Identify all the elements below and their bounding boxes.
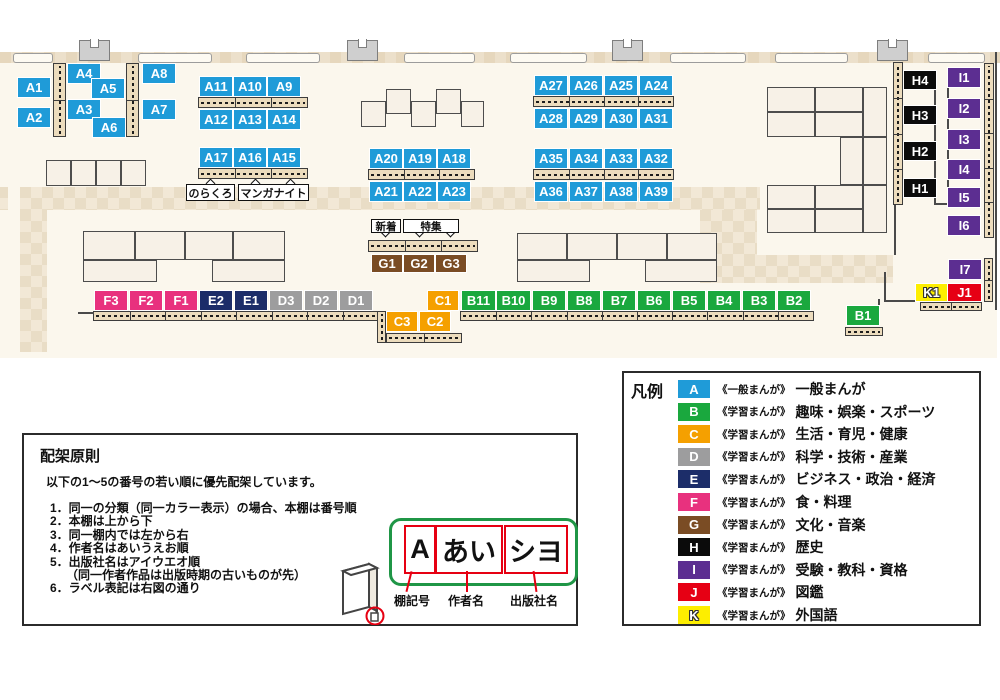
- table: [83, 260, 157, 282]
- shelf-label-J1: J1: [948, 284, 981, 301]
- legend-swatch-J: J: [678, 583, 710, 601]
- pillar-notch: [623, 39, 632, 48]
- window: [404, 53, 475, 63]
- bookshelf: [93, 311, 379, 321]
- legend-category: 一般まんが: [796, 379, 866, 399]
- wall-line: [894, 205, 896, 255]
- table: [767, 87, 815, 112]
- shelf-label-A33: A33: [605, 149, 637, 168]
- legend-row-B: B《学習まんが》趣味・娯楽・スポーツ: [678, 401, 935, 423]
- legend-category: 外国語: [796, 605, 838, 625]
- shelf-label-C1: C1: [428, 291, 458, 310]
- table: [767, 209, 815, 233]
- shelf-label-B8: B8: [568, 291, 600, 310]
- shelf-label-A10: A10: [234, 77, 266, 96]
- shelf-label-A25: A25: [605, 76, 637, 95]
- bookshelf: [460, 311, 814, 321]
- bookshelf: [893, 62, 903, 205]
- shelf-label-A12: A12: [200, 110, 232, 129]
- bookshelf-divider: [567, 312, 568, 320]
- wall-line: [78, 312, 94, 314]
- shelf-label-B7: B7: [603, 291, 635, 310]
- table: [815, 87, 863, 112]
- book-illustration: [329, 553, 404, 625]
- legend-category: 歴史: [796, 537, 824, 557]
- table: [121, 160, 146, 186]
- legend-type: 《学習まんが》: [717, 472, 791, 487]
- bookshelf: [386, 333, 462, 343]
- shelf-label-B10: B10: [497, 291, 530, 310]
- shelf-label-B5: B5: [673, 291, 705, 310]
- table: [517, 233, 567, 260]
- legend-category: 受験・教科・資格: [796, 560, 908, 580]
- table: [135, 231, 185, 260]
- table: [96, 160, 121, 186]
- legend-category: 趣味・娯楽・スポーツ: [796, 402, 936, 422]
- legend-category: 食・料理: [796, 492, 852, 512]
- shelf-tag-code-box: A: [404, 525, 436, 574]
- corridor-carpet: [0, 187, 8, 210]
- table: [840, 137, 863, 185]
- legend-swatch-F: F: [678, 493, 710, 511]
- bookshelf-divider: [602, 312, 603, 320]
- shelf-label-B6: B6: [638, 291, 670, 310]
- table: [517, 260, 590, 282]
- shelf-label-D1: D1: [340, 291, 372, 310]
- wall-line: [884, 272, 886, 302]
- table: [212, 260, 285, 282]
- shelf-label-A37: A37: [570, 182, 602, 201]
- callout-line: [466, 571, 468, 592]
- bookshelf: [198, 97, 308, 108]
- bookshelf-divider: [405, 241, 406, 251]
- bookshelf-divider: [707, 312, 708, 320]
- legend-swatch-A: A: [678, 380, 710, 398]
- table: [83, 231, 135, 260]
- shelf-label-K1: K1: [916, 284, 947, 301]
- table: [411, 101, 436, 127]
- table: [815, 112, 863, 137]
- bookshelf-divider: [271, 169, 272, 178]
- wall-line: [884, 300, 920, 302]
- shelf-label-A2: A2: [18, 108, 50, 127]
- table: [46, 160, 71, 186]
- table: [436, 89, 461, 114]
- shelf-label-A7: A7: [143, 100, 175, 119]
- wall-line: [934, 203, 948, 205]
- shelf-label-I4: I4: [948, 160, 980, 179]
- bookshelf-divider: [201, 312, 202, 320]
- legend-type: 《学習まんが》: [717, 404, 791, 419]
- legend-row-H: H《学習まんが》歴史: [678, 536, 824, 558]
- table: [461, 101, 484, 127]
- shelf-label-A16: A16: [234, 148, 266, 167]
- table: [567, 233, 617, 260]
- legend-swatch-D: D: [678, 448, 710, 466]
- bookshelf-divider: [604, 170, 605, 179]
- pillar-notch: [90, 39, 99, 48]
- pillar-notch: [888, 39, 897, 48]
- legend-type: 《学習まんが》: [717, 495, 791, 510]
- shelf-label-A27: A27: [535, 76, 567, 95]
- legend-row-D: D《学習まんが》科学・技術・産業: [678, 446, 908, 468]
- bookshelf-divider: [985, 202, 993, 203]
- legend-type: 《学習まんが》: [717, 608, 791, 623]
- bookshelf: [845, 327, 883, 336]
- window: [510, 53, 587, 63]
- shelf-tag-publisher-box: シヨ: [504, 525, 568, 574]
- bookshelf-dash: [988, 66, 990, 235]
- bookshelf-divider: [235, 98, 236, 107]
- shelf-label-A32: A32: [640, 149, 672, 168]
- bookshelf-divider: [439, 170, 440, 179]
- table: [617, 233, 667, 260]
- legend-swatch-K: K: [678, 606, 710, 624]
- bookshelf-divider: [985, 99, 993, 100]
- window: [138, 53, 212, 63]
- shelf-label-D3: D3: [270, 291, 302, 310]
- table: [361, 101, 386, 127]
- bookshelf-divider: [271, 98, 272, 107]
- shelf-label-A15: A15: [268, 148, 300, 167]
- bookshelf-divider: [235, 169, 236, 178]
- bookshelf: [920, 302, 982, 311]
- shelf-label-B3: B3: [743, 291, 775, 310]
- bookshelf-divider: [894, 134, 902, 135]
- legend-swatch-I: I: [678, 561, 710, 579]
- shelf-label-E2: E2: [200, 291, 232, 310]
- legend-category: 文化・音楽: [796, 515, 866, 535]
- shelf-label-A14: A14: [268, 110, 300, 129]
- bookshelf-divider: [404, 170, 405, 179]
- bookshelf: [984, 258, 993, 302]
- legend-panel: 凡例 A《一般まんが》一般まんがB《学習まんが》趣味・娯楽・スポーツC《学習まん…: [622, 371, 981, 626]
- bookshelf-divider: [236, 312, 237, 320]
- shelf-label-I6: I6: [948, 216, 980, 235]
- shelving-principles-panel: 配架原則 以下の1～5の番号の若い順に優先配架しています。 1．同一の分類（同一…: [22, 433, 578, 626]
- legend-type: 《学習まんが》: [717, 585, 791, 600]
- legend-type: 《学習まんが》: [717, 427, 791, 442]
- bookshelf: [53, 63, 66, 137]
- table: [815, 209, 863, 233]
- principles-intro: 以下の1～5の番号の若い順に優先配架しています。: [46, 473, 322, 490]
- legend-swatch-H: H: [678, 538, 710, 556]
- bookshelf-divider: [985, 133, 993, 134]
- bookshelf-divider: [130, 312, 131, 320]
- legend-type: 《学習まんが》: [717, 562, 791, 577]
- bookshelf: [126, 63, 139, 137]
- table: [667, 233, 717, 260]
- shelf-label-C2: C2: [420, 312, 450, 331]
- bookshelf-dash: [381, 314, 383, 340]
- bookshelf: [368, 240, 478, 252]
- shelf-label-D2: D2: [305, 291, 337, 310]
- legend-category: 生活・育児・健康: [796, 424, 908, 444]
- shelf-label-H1: H1: [904, 179, 936, 197]
- shelf-label-F3: F3: [95, 291, 127, 310]
- shelf-label-G1: G1: [372, 255, 402, 272]
- shelf-label-H3: H3: [904, 106, 936, 124]
- bookshelf: [198, 168, 308, 179]
- callout-section: 新着: [371, 219, 401, 233]
- legend-type: 《学習まんが》: [717, 540, 791, 555]
- bookshelf-divider: [441, 241, 442, 251]
- shelf-label-A21: A21: [370, 182, 402, 201]
- table: [645, 260, 717, 282]
- table: [863, 87, 887, 137]
- table: [863, 185, 887, 233]
- window: [13, 53, 53, 63]
- shelf-label-G3: G3: [436, 255, 466, 272]
- bookshelf: [533, 96, 674, 107]
- legend-title: 凡例: [631, 378, 663, 402]
- shelf-label-A6: A6: [93, 118, 125, 137]
- legend-swatch-E: E: [678, 470, 710, 488]
- shelf-label-B2: B2: [778, 291, 810, 310]
- table: [863, 137, 887, 185]
- bookshelf-divider: [272, 312, 273, 320]
- table: [233, 231, 285, 260]
- shelf-label-A34: A34: [570, 149, 602, 168]
- bookshelf-divider: [637, 312, 638, 320]
- window: [246, 53, 320, 63]
- shelf-label-A23: A23: [438, 182, 470, 201]
- table: [767, 185, 815, 209]
- shelf-label-B4: B4: [708, 291, 740, 310]
- bookshelf-divider: [638, 97, 639, 106]
- shelf-label-A11: A11: [200, 77, 232, 96]
- bookshelf-divider: [54, 100, 65, 101]
- legend-swatch-C: C: [678, 425, 710, 443]
- legend-type: 《学習まんが》: [717, 449, 791, 464]
- legend-row-C: C《学習まんが》生活・育児・健康: [678, 423, 908, 445]
- bookshelf-divider: [496, 312, 497, 320]
- table: [815, 185, 863, 209]
- shelf-tag-code-caption: 棚記号: [394, 592, 430, 609]
- bookshelf: [368, 169, 475, 180]
- principles-title: 配架原則: [40, 445, 100, 466]
- shelf-label-F2: F2: [130, 291, 162, 310]
- bookshelf-dash: [371, 174, 472, 176]
- shelf-label-A18: A18: [438, 149, 470, 168]
- bookshelf: [377, 311, 386, 343]
- shelf-label-A13: A13: [234, 110, 266, 129]
- pillar-notch: [358, 39, 367, 48]
- shelf-label-A3: A3: [68, 100, 100, 119]
- legend-type: 《一般まんが》: [717, 382, 791, 397]
- legend-row-E: E《学習まんが》ビジネス・政治・経済: [678, 468, 936, 490]
- bookshelf-dash: [201, 173, 305, 175]
- shelf-label-I7: I7: [949, 260, 981, 279]
- shelf-tag-publisher-caption: 出版社名: [510, 592, 558, 609]
- principles-item: 6．ラベル表記は右図の通り: [50, 579, 201, 596]
- table: [386, 89, 411, 114]
- table: [767, 112, 815, 137]
- legend-row-J: J《学習まんが》図鑑: [678, 581, 824, 603]
- shelf-label-A20: A20: [370, 149, 402, 168]
- legend-type: 《学習まんが》: [717, 517, 791, 532]
- shelf-tag-author-box: あい: [435, 525, 503, 574]
- bookshelf: [984, 63, 994, 238]
- bookshelf-dash: [371, 245, 475, 247]
- callout-area: マンガナイト: [238, 184, 309, 201]
- callout-section: 特集: [403, 219, 459, 233]
- bookshelf-divider: [672, 312, 673, 320]
- shelf-label-A30: A30: [605, 109, 637, 128]
- shelf-label-A38: A38: [605, 182, 637, 201]
- shelf-label-I3: I3: [948, 130, 980, 149]
- shelf-label-A29: A29: [570, 109, 602, 128]
- table: [185, 231, 233, 260]
- bookshelf-divider: [604, 97, 605, 106]
- bookshelf-divider: [951, 303, 952, 310]
- table: [71, 160, 96, 186]
- bookshelf-dash: [201, 102, 305, 104]
- bookshelf-dash: [848, 331, 880, 333]
- bookshelf-divider: [638, 170, 639, 179]
- window: [928, 53, 985, 63]
- bookshelf-divider: [894, 98, 902, 99]
- shelf-label-A36: A36: [535, 182, 567, 201]
- bookshelf-divider: [343, 312, 344, 320]
- legend-category: ビジネス・政治・経済: [796, 469, 936, 489]
- shelf-label-F1: F1: [165, 291, 197, 310]
- corridor-carpet: [700, 255, 893, 283]
- shelf-label-A35: A35: [535, 149, 567, 168]
- bookshelf-divider: [531, 312, 532, 320]
- shelf-label-A17: A17: [200, 148, 232, 167]
- bookshelf: [533, 169, 674, 180]
- shelf-label-A28: A28: [535, 109, 567, 128]
- bookshelf-divider: [127, 100, 138, 101]
- legend-category: 図鑑: [796, 582, 824, 602]
- legend-row-G: G《学習まんが》文化・音楽: [678, 514, 866, 536]
- shelf-label-G2: G2: [404, 255, 434, 272]
- bookshelf-divider: [985, 280, 992, 281]
- shelf-label-B11: B11: [462, 291, 495, 310]
- shelf-label-A26: A26: [570, 76, 602, 95]
- shelf-label-A9: A9: [268, 77, 300, 96]
- legend-row-I: I《学習まんが》受験・教科・資格: [678, 559, 908, 581]
- legend-row-A: A《一般まんが》一般まんが: [678, 378, 866, 400]
- shelf-label-H4: H4: [904, 71, 936, 89]
- shelf-label-A39: A39: [640, 182, 672, 201]
- legend-swatch-B: B: [678, 403, 710, 421]
- legend-swatch-G: G: [678, 516, 710, 534]
- bookshelf-divider: [165, 312, 166, 320]
- shelf-label-C3: C3: [387, 312, 417, 331]
- corridor-carpet: [20, 210, 47, 352]
- bookshelf-divider: [424, 334, 425, 342]
- shelf-label-E1: E1: [235, 291, 267, 310]
- shelf-label-A31: A31: [640, 109, 672, 128]
- shelf-label-A5: A5: [92, 79, 124, 98]
- shelf-label-B1: B1: [847, 306, 879, 325]
- bookshelf-divider: [985, 168, 993, 169]
- callout-area: のらくろ: [186, 184, 235, 201]
- legend-row-F: F《学習まんが》食・料理: [678, 491, 852, 513]
- shelf-label-I5: I5: [948, 188, 980, 207]
- shelf-label-I2: I2: [948, 99, 980, 118]
- bookshelf-divider: [778, 312, 779, 320]
- window: [670, 53, 746, 63]
- bookshelf-divider: [307, 312, 308, 320]
- shelf-label-I1: I1: [948, 68, 980, 87]
- shelf-tag-author-caption: 作者名: [448, 592, 484, 609]
- wall-line: [995, 52, 997, 310]
- bookshelf-divider: [569, 170, 570, 179]
- bookshelf-divider: [569, 97, 570, 106]
- bookshelf-divider: [743, 312, 744, 320]
- shelf-label-H2: H2: [904, 142, 936, 160]
- legend-category: 科学・技術・産業: [796, 447, 908, 467]
- bookshelf-divider: [894, 169, 902, 170]
- shelf-label-A1: A1: [18, 78, 50, 97]
- window: [775, 53, 848, 63]
- shelf-label-A8: A8: [143, 64, 175, 83]
- shelf-label-A24: A24: [640, 76, 672, 95]
- shelf-label-A19: A19: [404, 149, 436, 168]
- manga-floor-map-page: A1A2A4A5A3A6A8A7A11A10A9A12A13A14A17A16A…: [0, 0, 1000, 700]
- shelf-label-A22: A22: [404, 182, 436, 201]
- shelf-label-B9: B9: [533, 291, 565, 310]
- legend-row-K: K《学習まんが》外国語: [678, 604, 838, 626]
